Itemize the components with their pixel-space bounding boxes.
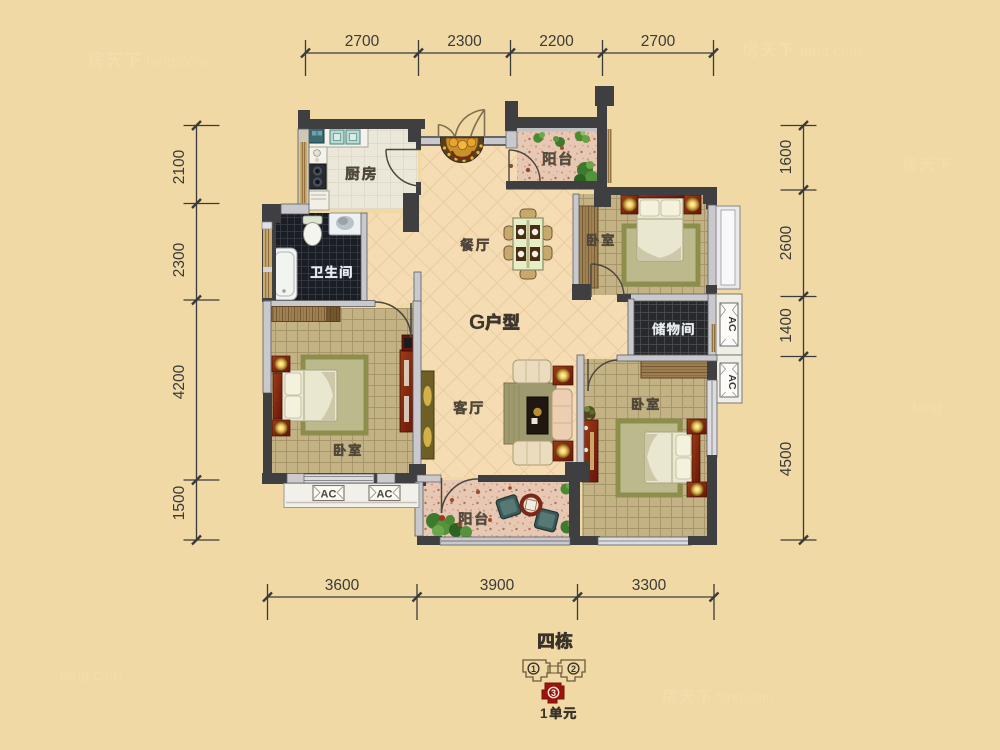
svg-text:4500: 4500	[778, 441, 795, 476]
svg-text:AC: AC	[321, 489, 337, 501]
svg-text:1: 1	[540, 706, 548, 721]
svg-text:fang.com: fang.com	[800, 43, 862, 60]
svg-text:3300: 3300	[632, 577, 667, 594]
svg-text:fang.com: fang.com	[716, 689, 774, 705]
svg-text:1400: 1400	[778, 308, 795, 343]
svg-text:1: 1	[531, 664, 536, 674]
svg-text:2700: 2700	[641, 33, 676, 50]
svg-text:3600: 3600	[325, 577, 360, 594]
svg-text:AC: AC	[377, 489, 393, 501]
svg-text:2700: 2700	[345, 33, 380, 50]
svg-text:fang.com: fang.com	[146, 53, 208, 70]
svg-text:3900: 3900	[480, 577, 515, 594]
svg-text:fang.com: fang.com	[60, 667, 122, 684]
svg-text:AC: AC	[726, 374, 738, 390]
svg-text:1500: 1500	[171, 485, 188, 520]
svg-text:2200: 2200	[539, 33, 574, 50]
svg-text:4200: 4200	[171, 364, 188, 399]
svg-text:AC: AC	[726, 316, 738, 332]
svg-text:fang: fang	[912, 399, 941, 416]
svg-text:2600: 2600	[778, 225, 795, 260]
svg-text:2: 2	[571, 664, 576, 674]
svg-text:G: G	[469, 311, 485, 334]
svg-text:3: 3	[551, 688, 556, 698]
svg-text:1600: 1600	[778, 139, 795, 174]
svg-text:2100: 2100	[171, 149, 188, 184]
svg-text:2300: 2300	[447, 33, 482, 50]
svg-text:2300: 2300	[171, 242, 188, 277]
